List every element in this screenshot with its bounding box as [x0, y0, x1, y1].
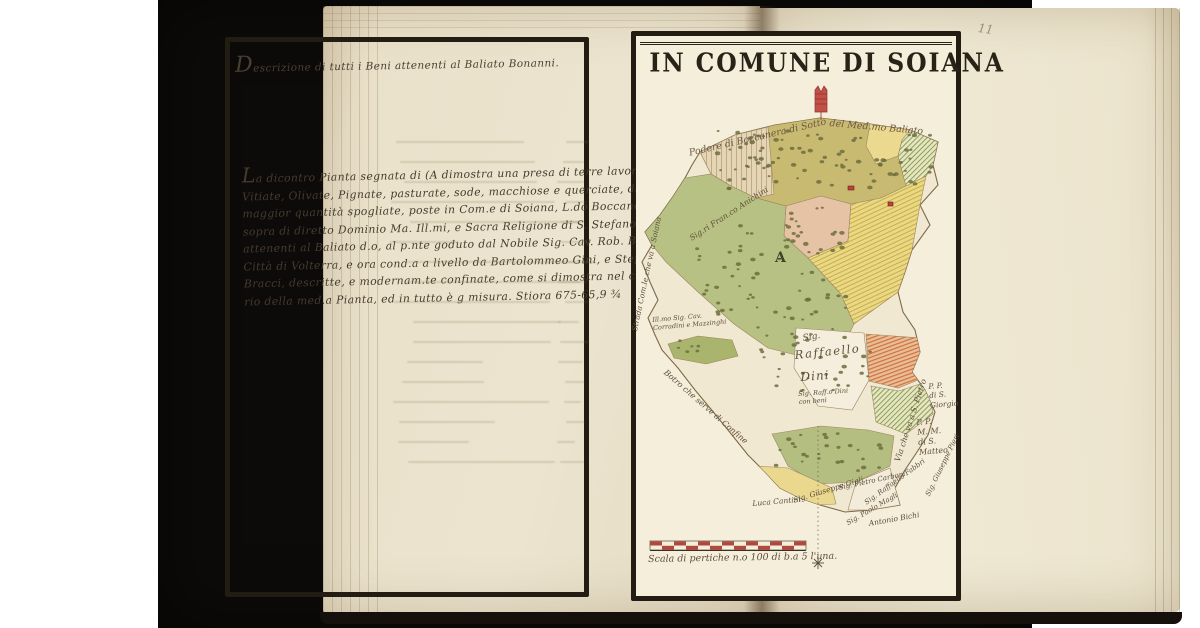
left-page-ink-frame [225, 37, 589, 597]
label-pp-giorgio: P. P. di S. Giorgio [928, 380, 959, 410]
label-dini-sub: Sig. Raff.o Dini con beni [798, 387, 849, 407]
farm-building [888, 202, 893, 206]
book-bottom-edge [320, 612, 1182, 624]
label-dini: Dini [800, 368, 830, 385]
scanned-book-photo: Descrizione di tutti i Beni attenenti al… [0, 0, 1200, 628]
stacked-page-edges-top [323, 6, 760, 30]
manuscript-paragraph: La dicontro Pianta segnata di (A dimostr… [242, 163, 579, 311]
title-rule [640, 42, 952, 45]
map-title: IN COMUNE DI SOIANA [649, 47, 942, 77]
page-number: 11 [977, 21, 994, 37]
parcel-letter: A [775, 250, 786, 266]
stacked-page-edges-right [1148, 8, 1180, 612]
scale-bar [650, 541, 806, 551]
farm-building [848, 186, 854, 190]
